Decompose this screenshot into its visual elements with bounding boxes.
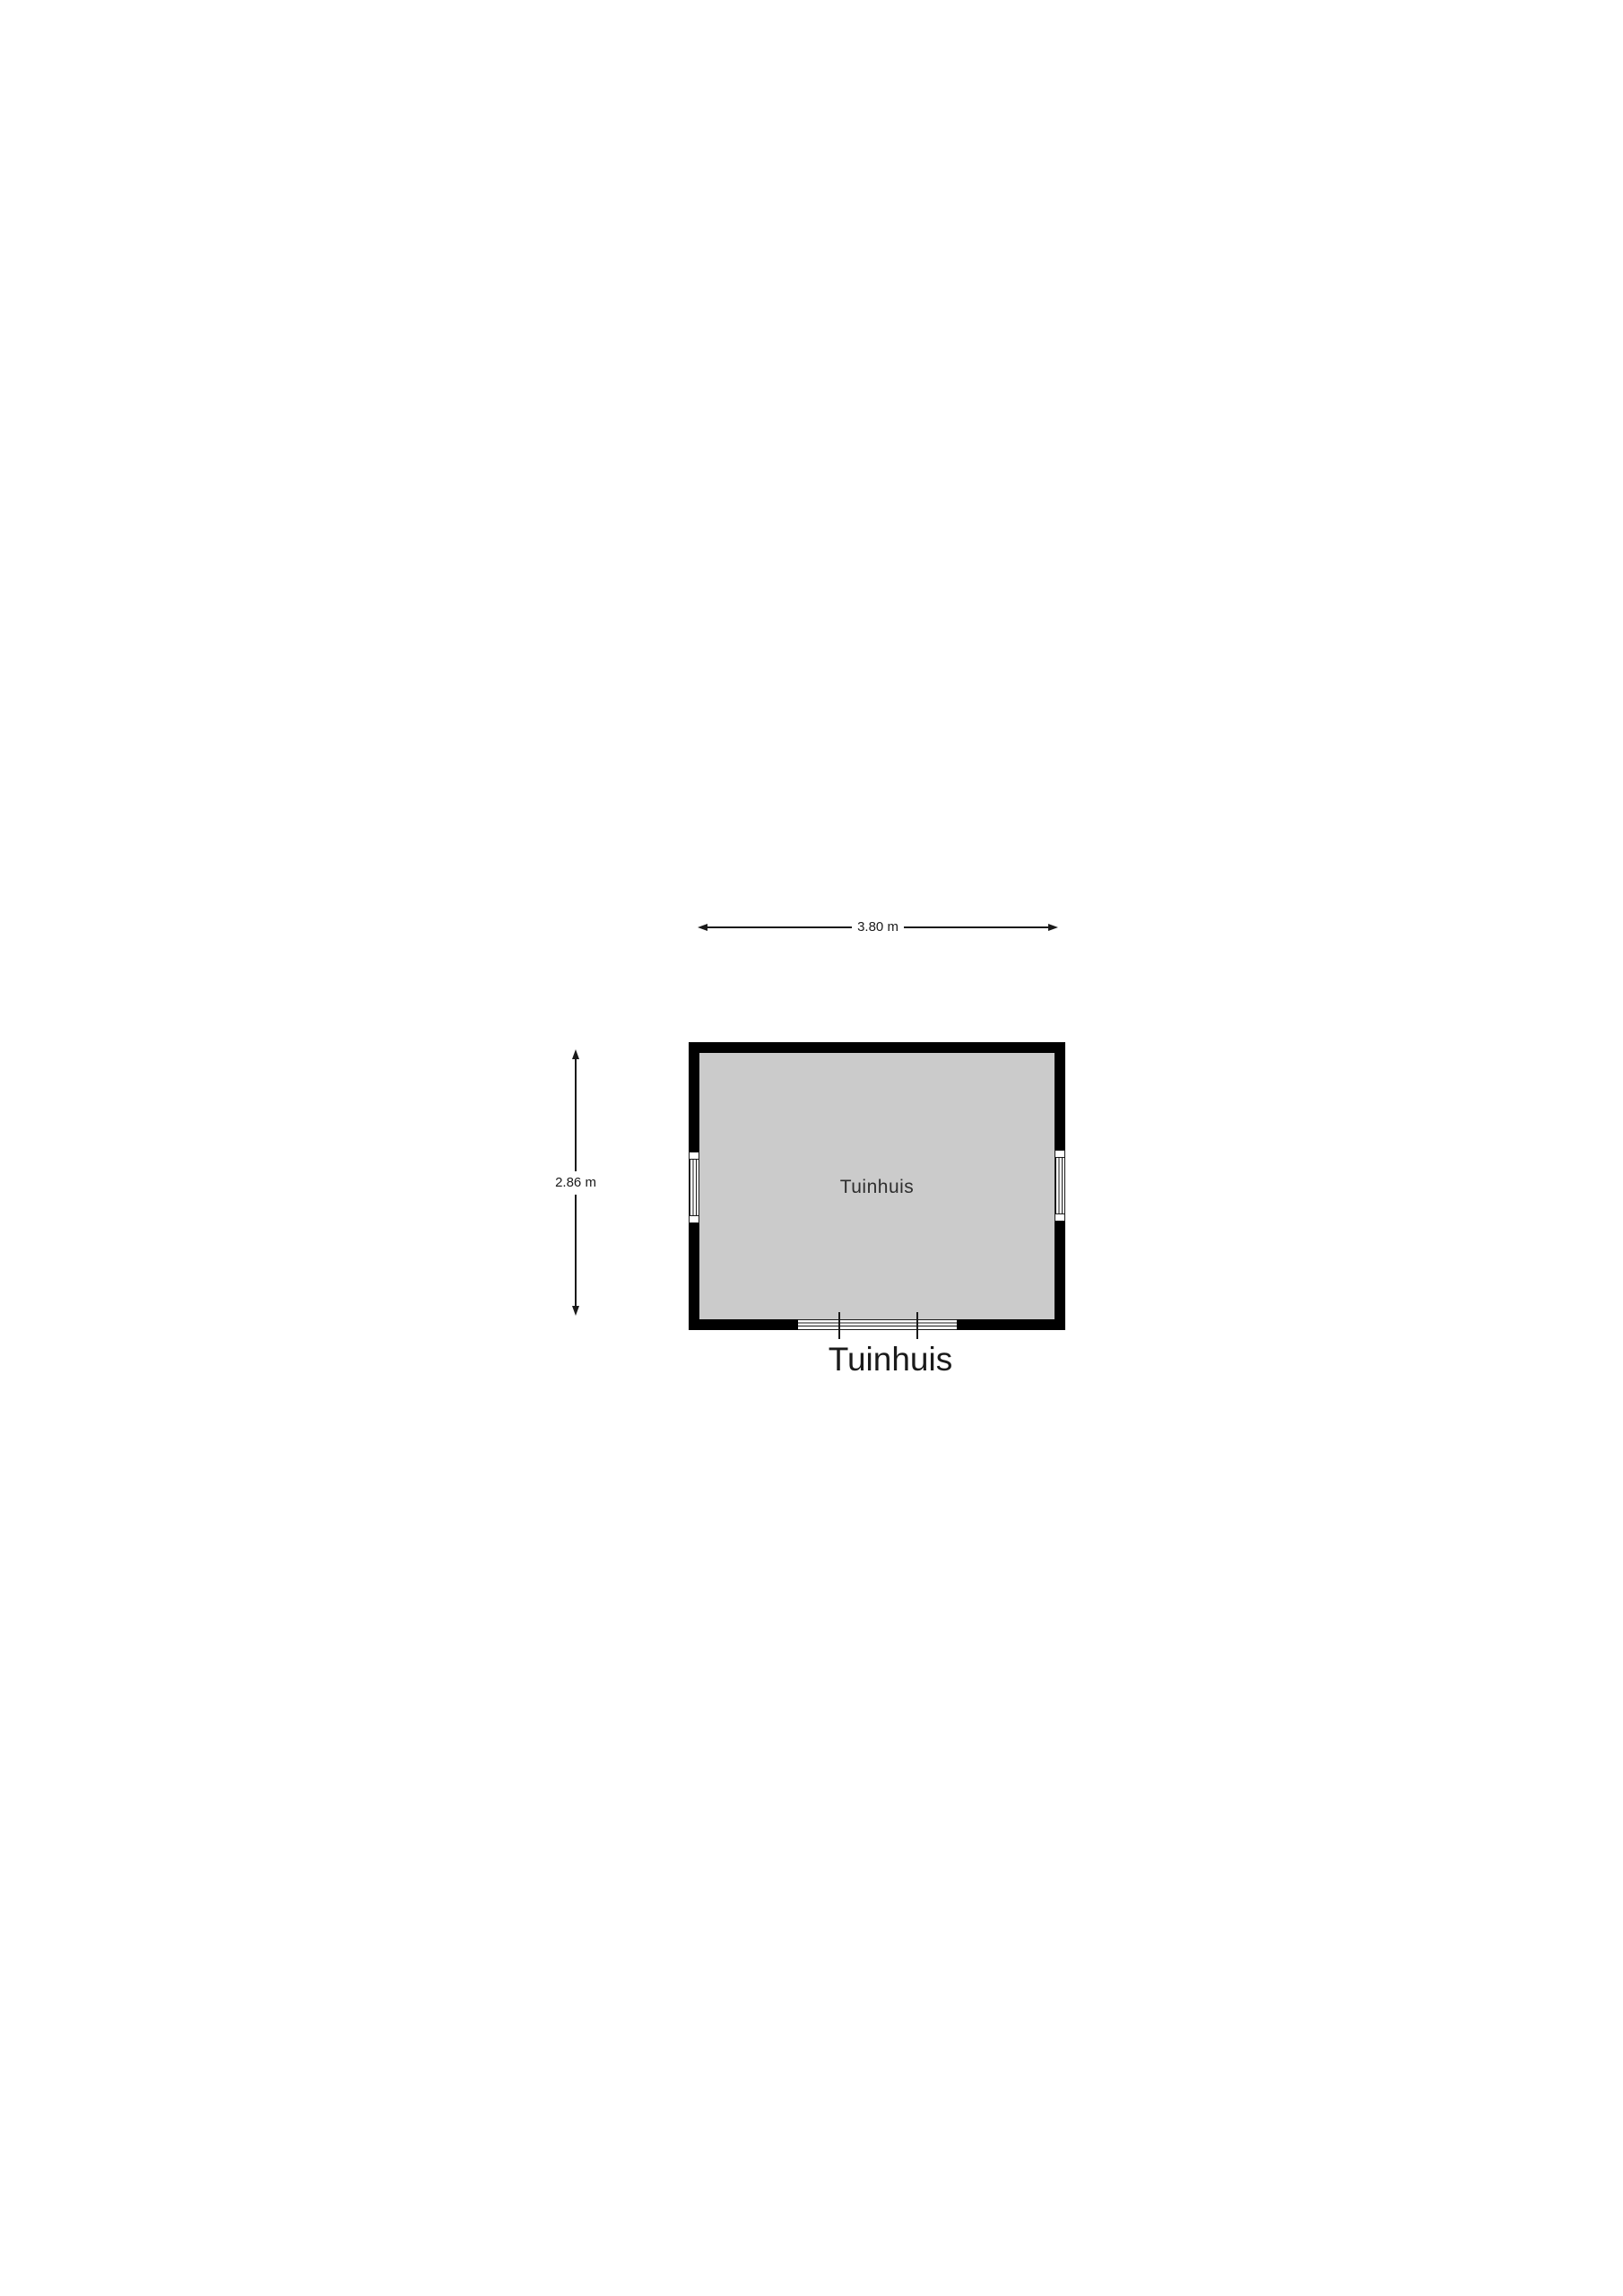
dimension-line: [575, 1195, 577, 1307]
window-sill: [1055, 1214, 1064, 1221]
floorplan-canvas: 3.80 m 2.86 m Tuinhuis Tuinhuis: [0, 0, 1623, 2296]
arrowhead-right-icon: [1048, 924, 1058, 931]
dimension-line: [575, 1059, 577, 1171]
dimension-line: [904, 926, 1048, 928]
building-outline: Tuinhuis: [689, 1042, 1065, 1330]
window-sill: [1055, 1151, 1064, 1157]
arrowhead-left-icon: [698, 924, 707, 931]
bottom-door-opening: [798, 1319, 957, 1330]
arrowhead-down-icon: [572, 1306, 579, 1316]
right-window: [1055, 1150, 1065, 1222]
floorplan-title: Tuinhuis: [689, 1342, 1092, 1378]
door-tick-right: [916, 1312, 918, 1339]
dimension-width-label: 3.80 m: [852, 920, 904, 935]
dimension-width: 3.80 m: [698, 920, 1058, 935]
dimension-height: 2.86 m: [568, 1049, 583, 1316]
window-glazing: [1055, 1157, 1064, 1214]
window-sill: [690, 1152, 699, 1159]
left-window: [689, 1152, 699, 1223]
dimension-line: [707, 926, 852, 928]
room-label: Tuinhuis: [699, 1178, 1055, 1196]
window-glazing: [690, 1159, 699, 1216]
window-sill: [690, 1216, 699, 1222]
dimension-height-label: 2.86 m: [555, 1171, 596, 1195]
door-tick-left: [838, 1312, 840, 1339]
arrowhead-up-icon: [572, 1049, 579, 1059]
